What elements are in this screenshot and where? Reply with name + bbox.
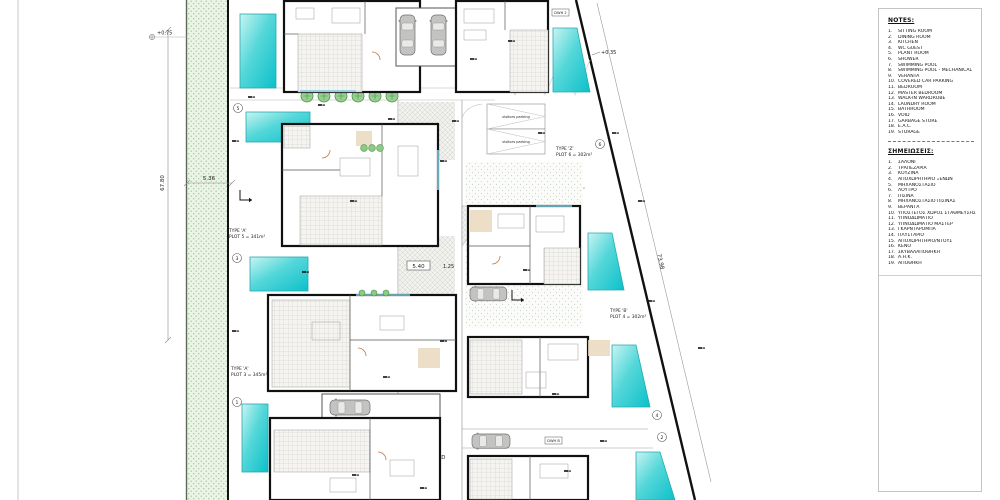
villa-bottom-right-a: 4 bbox=[468, 337, 662, 420]
car bbox=[399, 15, 417, 55]
carport-top bbox=[396, 8, 456, 66]
visitors-parking-label: visitors parking bbox=[502, 140, 530, 144]
plot-area-label: PLOT 4 = 302m² bbox=[610, 314, 646, 320]
plot-number: 5 bbox=[237, 106, 240, 112]
swimming-pool bbox=[242, 404, 268, 472]
notes-title-gr: ΣΗΜΕΙΩΣΕΙΣ: bbox=[888, 148, 976, 155]
swimming-pool bbox=[240, 14, 276, 88]
swimming-pool bbox=[250, 257, 308, 291]
veranda bbox=[470, 340, 522, 394]
notes-panel: NOTES: SITTING ROOMDINING ROOMKITCHENWC … bbox=[878, 8, 982, 492]
unit-tag: DWH 2 bbox=[554, 11, 566, 15]
plot-number: 6 bbox=[599, 142, 602, 148]
villa-top-right: DWH 2 bbox=[456, 1, 590, 92]
plot-area-label: PLOT 3 = 345m² bbox=[231, 372, 267, 378]
swimming-pool bbox=[636, 452, 675, 500]
veranda bbox=[300, 196, 382, 245]
veranda bbox=[272, 300, 350, 387]
green-landscape-strip bbox=[186, 0, 228, 500]
plot-number: 2 bbox=[661, 435, 664, 441]
plot-area-label: PLOT 5 = 341m² bbox=[229, 234, 265, 240]
svg-text:73.98: 73.98 bbox=[655, 253, 665, 270]
visitors-parking-label: visitors parking bbox=[502, 115, 530, 119]
svg-text:5.36: 5.36 bbox=[203, 176, 216, 182]
villa-plot5: 5 TYPE 'A' PLOT 5 = 341m² bbox=[228, 104, 438, 247]
plot-number: 4 bbox=[656, 413, 659, 419]
dimension-site-height: 67.80 bbox=[160, 27, 171, 343]
svg-text:67.80: 67.80 bbox=[160, 175, 166, 191]
veranda bbox=[544, 248, 580, 284]
legend-item: STORAGE bbox=[888, 130, 976, 136]
car bbox=[470, 286, 507, 303]
car bbox=[430, 15, 448, 55]
svg-text:+0.35: +0.35 bbox=[601, 50, 616, 56]
level-marker-035: +0.35 bbox=[592, 50, 616, 56]
legend-separator bbox=[888, 141, 974, 142]
plot6-label: 6 TYPE 'Z' PLOT 6 = 302m² bbox=[555, 140, 605, 159]
unit-tag: DWH B bbox=[547, 439, 560, 443]
veranda bbox=[298, 34, 362, 92]
notes-title-en: NOTES: bbox=[888, 17, 976, 24]
legend-list-gr: ΣΑΛΟΝΙΤΡΑΠΕΖΑΡΙΑΚΟΥΖΙΝΑΑΠΟΧΩΡΗΤΗΡΙΟ ΞΕΝΩ… bbox=[888, 160, 976, 266]
car bbox=[472, 433, 510, 450]
plot-area-label: PLOT 6 = 302m² bbox=[556, 152, 592, 158]
veranda bbox=[510, 30, 548, 92]
legend-item: SWIMMING POOL - MECHANICAL bbox=[888, 68, 976, 74]
plot-type-label: TYPE 'B' bbox=[609, 308, 628, 314]
visitors-parking: visitors parking visitors parking bbox=[487, 104, 545, 154]
site-plan-drawing: 67.80 +0.75 5.36 73.98 +0.35 5.40 1.25 P… bbox=[0, 0, 1000, 500]
veranda bbox=[470, 459, 512, 499]
panel-divider bbox=[879, 275, 981, 276]
plot-type-label: TYPE 'A' bbox=[230, 366, 249, 372]
veranda bbox=[274, 430, 370, 472]
villa-plot1: 1 bbox=[233, 394, 441, 500]
bottom-drive: DWH B bbox=[462, 429, 653, 450]
road-width-dim: 5.40 bbox=[412, 264, 425, 270]
legend-item: ΑΠΟΘΗΚΗ bbox=[888, 261, 976, 267]
plot-number: 1 bbox=[236, 400, 239, 406]
plot-number: 3 bbox=[236, 256, 239, 262]
plot-type-label: TYPE 'A' bbox=[228, 228, 247, 234]
road-offset-dim: 1.25 bbox=[443, 264, 454, 270]
plot-type-label: TYPE 'Z' bbox=[555, 146, 574, 152]
svg-text:+0.75: +0.75 bbox=[157, 31, 172, 37]
site-plan-sheet: 67.80 +0.75 5.36 73.98 +0.35 5.40 1.25 P… bbox=[0, 0, 1000, 500]
swimming-pool bbox=[612, 345, 650, 407]
legend-list-en: SITTING ROOMDINING ROOMKITCHENWC GUESTPL… bbox=[888, 29, 976, 135]
car bbox=[330, 399, 370, 417]
swimming-pool bbox=[588, 233, 624, 290]
